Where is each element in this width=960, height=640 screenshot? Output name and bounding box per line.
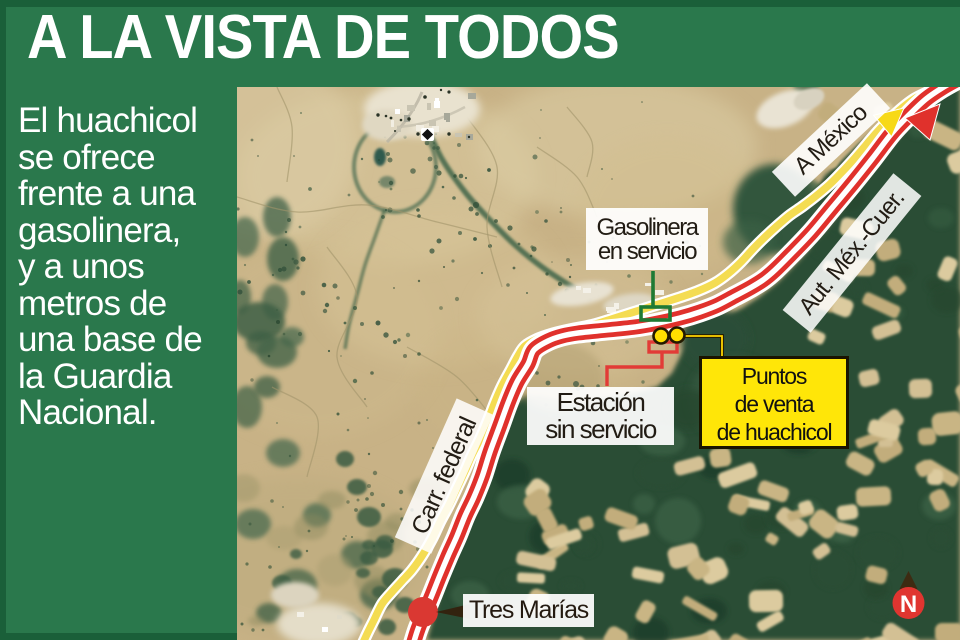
svg-text:N: N bbox=[900, 591, 917, 618]
